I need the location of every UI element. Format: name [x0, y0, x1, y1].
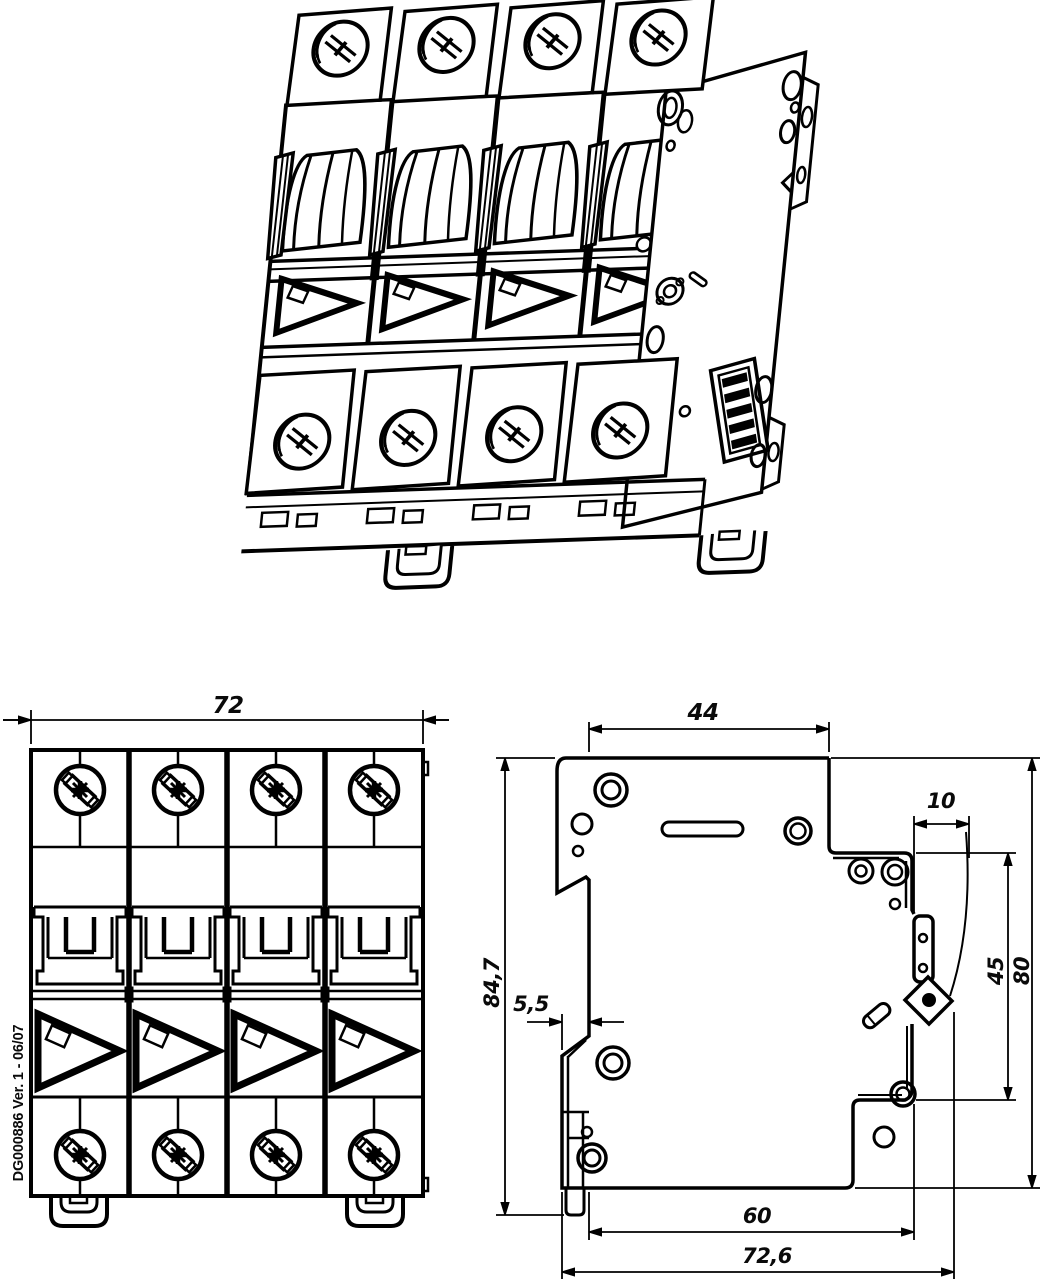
- dimension-side-recess-height: 45: [984, 957, 1008, 985]
- toggle-lever: [494, 142, 582, 244]
- dimension-side-hook-offset: 5,5: [513, 992, 549, 1016]
- breaker-pole-module: [328, 750, 420, 1196]
- dimension-side-overall-height: 84,7: [480, 958, 504, 1008]
- din-clip: [698, 530, 766, 573]
- toggle-lever: [282, 149, 370, 251]
- dimension-side-overall-depth: 72,6: [742, 1244, 792, 1268]
- part-number-label: DG000886 Ver. 1 - 06/07: [11, 1025, 27, 1182]
- dimension-front-width: 72: [212, 693, 243, 719]
- din-clip: [51, 1196, 107, 1226]
- dimension-side-top-depth: 44: [687, 700, 718, 726]
- dimension-side-latch-offset: 10: [927, 789, 955, 813]
- dimension-side-body-depth: 60: [743, 1204, 771, 1228]
- top-terminal-blocks: [287, 0, 713, 105]
- din-clip: [384, 545, 452, 588]
- side-view: [496, 722, 1040, 1279]
- isometric-view: [232, 0, 827, 594]
- arrow-mark-icon: [276, 276, 359, 333]
- breaker-pole-module: [230, 750, 322, 1196]
- breaker-pole-module: [34, 750, 126, 1196]
- din-clip: [347, 1196, 403, 1226]
- toggle-lever: [388, 146, 476, 248]
- breaker-pole-module: [132, 750, 224, 1196]
- technical-drawing-canvas: 72 44 10 84,7 5,5 45 80 60 72,6 DG000886…: [0, 0, 1048, 1280]
- dimension-lines-side: [496, 722, 1040, 1279]
- arrow-mark-icon: [382, 272, 465, 329]
- front-view: [3, 710, 449, 1226]
- bottom-terminal-blocks: [246, 359, 677, 494]
- arrow-mark-icon: [488, 269, 571, 326]
- dimension-side-body-height: 80: [1010, 957, 1034, 985]
- drawing-linework: [0, 0, 1048, 1280]
